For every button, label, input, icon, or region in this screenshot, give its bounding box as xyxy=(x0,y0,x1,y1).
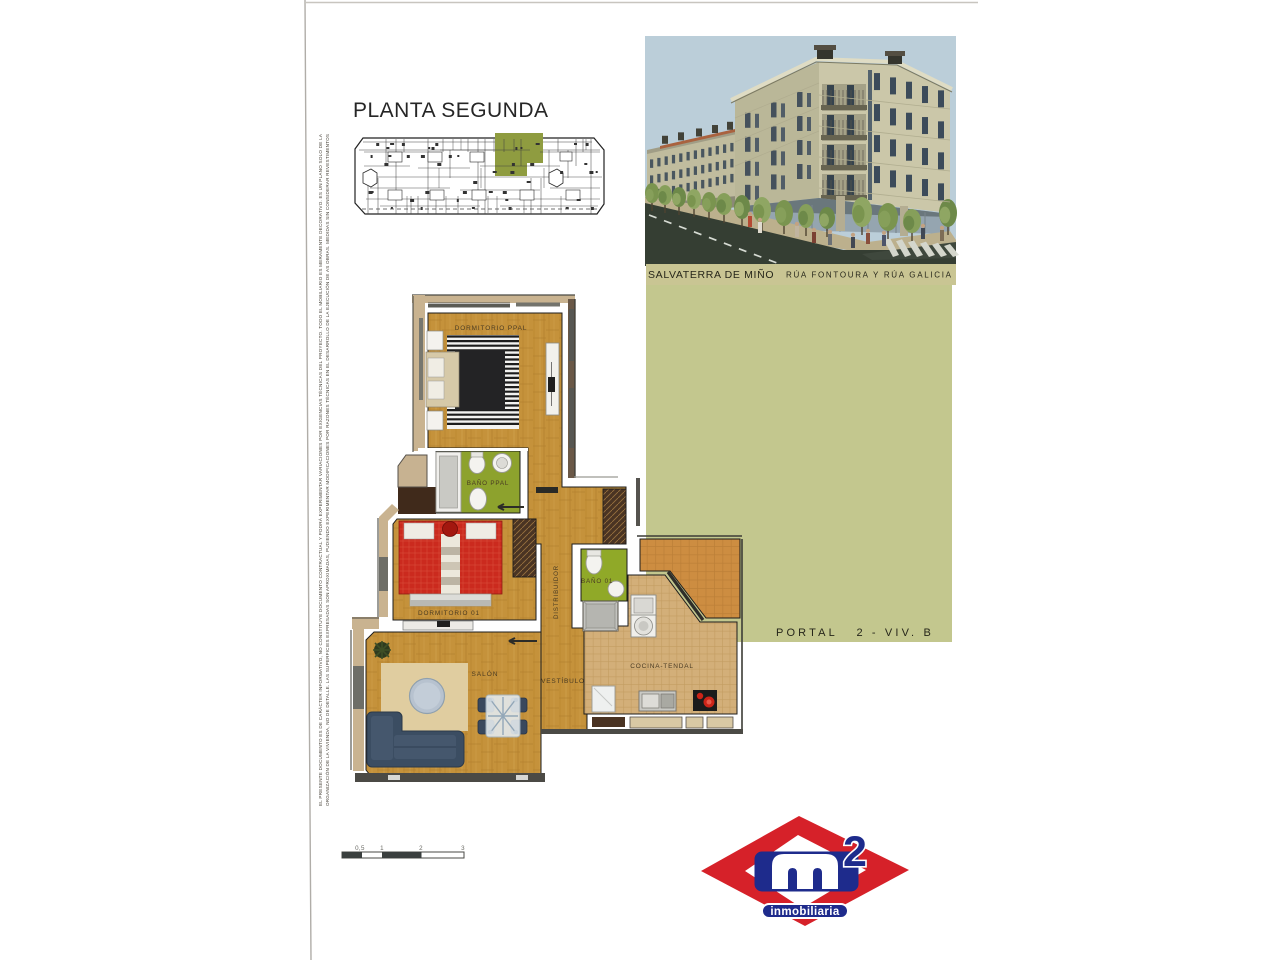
svg-text:VESTÍBULO: VESTÍBULO xyxy=(541,676,585,685)
svg-text:BAÑO 01: BAÑO 01 xyxy=(581,576,613,585)
svg-text:DISTRIBUIDOR: DISTRIBUIDOR xyxy=(553,565,560,619)
svg-text:1: 1 xyxy=(380,845,384,852)
svg-text:DORMITORIO 01: DORMITORIO 01 xyxy=(418,610,480,617)
svg-text:SALÓN: SALÓN xyxy=(471,669,498,678)
svg-text:3: 3 xyxy=(461,845,465,852)
svg-text:PORTAL 2 - VIV. B: PORTAL 2 - VIV. B xyxy=(776,627,933,639)
svg-text:inmobiliaria: inmobiliaria xyxy=(770,906,840,918)
svg-text:2: 2 xyxy=(843,828,867,876)
svg-text:ORGANIZACIÓN DE LA VIVIENDA, N: ORGANIZACIÓN DE LA VIVIENDA, NO DE DETAL… xyxy=(324,134,330,806)
svg-text:PLANTA SEGUNDA: PLANTA SEGUNDA xyxy=(353,99,550,122)
svg-text:COCINA-TENDAL: COCINA-TENDAL xyxy=(630,663,694,670)
svg-text:BAÑO PPAL: BAÑO PPAL xyxy=(467,478,509,487)
svg-text:0,5: 0,5 xyxy=(355,845,365,852)
svg-text:RÚA FONTOURA Y RÚA GALICIA: RÚA FONTOURA Y RÚA GALICIA xyxy=(786,271,952,280)
svg-text:2: 2 xyxy=(419,845,423,852)
svg-text:EL PRESENTE DOCUMENTO ES DE CA: EL PRESENTE DOCUMENTO ES DE CARÁCTER INF… xyxy=(317,133,323,806)
svg-text:DORMITORIO PPAL: DORMITORIO PPAL xyxy=(455,325,528,332)
svg-text:SALVATERRA DE MIÑO: SALVATERRA DE MIÑO xyxy=(648,268,775,281)
